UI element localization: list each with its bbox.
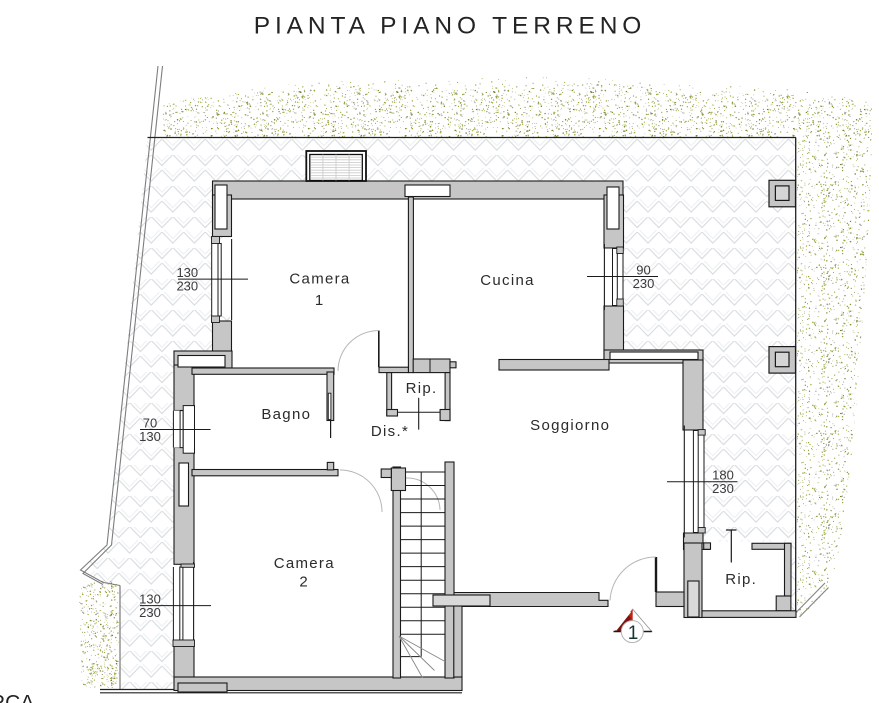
svg-text:RCA: RCA <box>0 692 34 703</box>
svg-text:2: 2 <box>299 573 307 590</box>
svg-text:1: 1 <box>628 623 639 644</box>
svg-text:130: 130 <box>139 429 161 444</box>
svg-text:PIANTA PIANO TERRENO: PIANTA PIANO TERRENO <box>254 12 647 39</box>
svg-text:230: 230 <box>633 276 655 291</box>
svg-text:Cucina: Cucina <box>480 272 535 289</box>
svg-text:1: 1 <box>315 292 323 309</box>
svg-text:230: 230 <box>139 605 161 620</box>
svg-text:Rip.: Rip. <box>406 380 438 397</box>
svg-text:Camera: Camera <box>289 271 350 288</box>
svg-text:Soggiorno: Soggiorno <box>530 417 610 434</box>
svg-text:230: 230 <box>176 278 198 293</box>
svg-text:230: 230 <box>712 481 734 496</box>
svg-text:Dis.*: Dis.* <box>371 423 409 440</box>
svg-text:Rip.: Rip. <box>725 571 757 588</box>
svg-text:Bagno: Bagno <box>261 406 311 423</box>
svg-text:Camera: Camera <box>274 555 335 572</box>
